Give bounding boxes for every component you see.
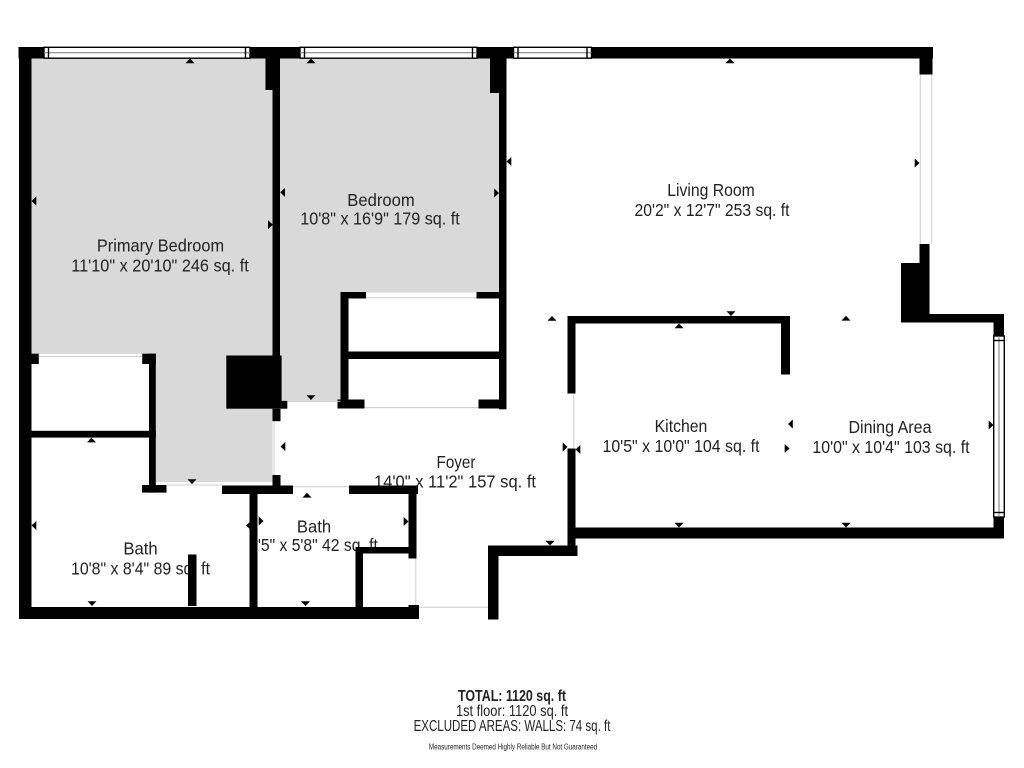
svg-text:Kitchen: Kitchen — [655, 416, 708, 436]
svg-text:10'8" x 16'9" 179 sq. ft: 10'8" x 16'9" 179 sq. ft — [300, 209, 460, 229]
svg-text:Dining Area: Dining Area — [848, 417, 931, 437]
svg-text:10'5" x 10'0" 104 sq. ft: 10'5" x 10'0" 104 sq. ft — [603, 436, 760, 456]
svg-text:Foyer: Foyer — [437, 452, 476, 472]
svg-text:Primary Bedroom: Primary Bedroom — [97, 236, 224, 256]
svg-text:Bath: Bath — [297, 517, 331, 537]
svg-text:EXCLUDED AREAS: WALLS: 74 sq.: EXCLUDED AREAS: WALLS: 74 sq. ft — [414, 718, 611, 735]
svg-text:10'0" x 10'4" 103 sq. ft: 10'0" x 10'4" 103 sq. ft — [812, 437, 969, 457]
svg-text:Measurements Deemed Highly Rel: Measurements Deemed Highly Reliable But … — [429, 742, 597, 752]
svg-text:11'10" x 20'10" 246 sq. ft: 11'10" x 20'10" 246 sq. ft — [71, 256, 249, 276]
svg-text:20'2" x 12'7" 253 sq. ft: 20'2" x 12'7" 253 sq. ft — [635, 200, 790, 220]
svg-text:Bath: Bath — [123, 539, 157, 559]
svg-text:Living Room: Living Room — [667, 180, 755, 200]
svg-text:Bedroom: Bedroom — [347, 190, 414, 210]
